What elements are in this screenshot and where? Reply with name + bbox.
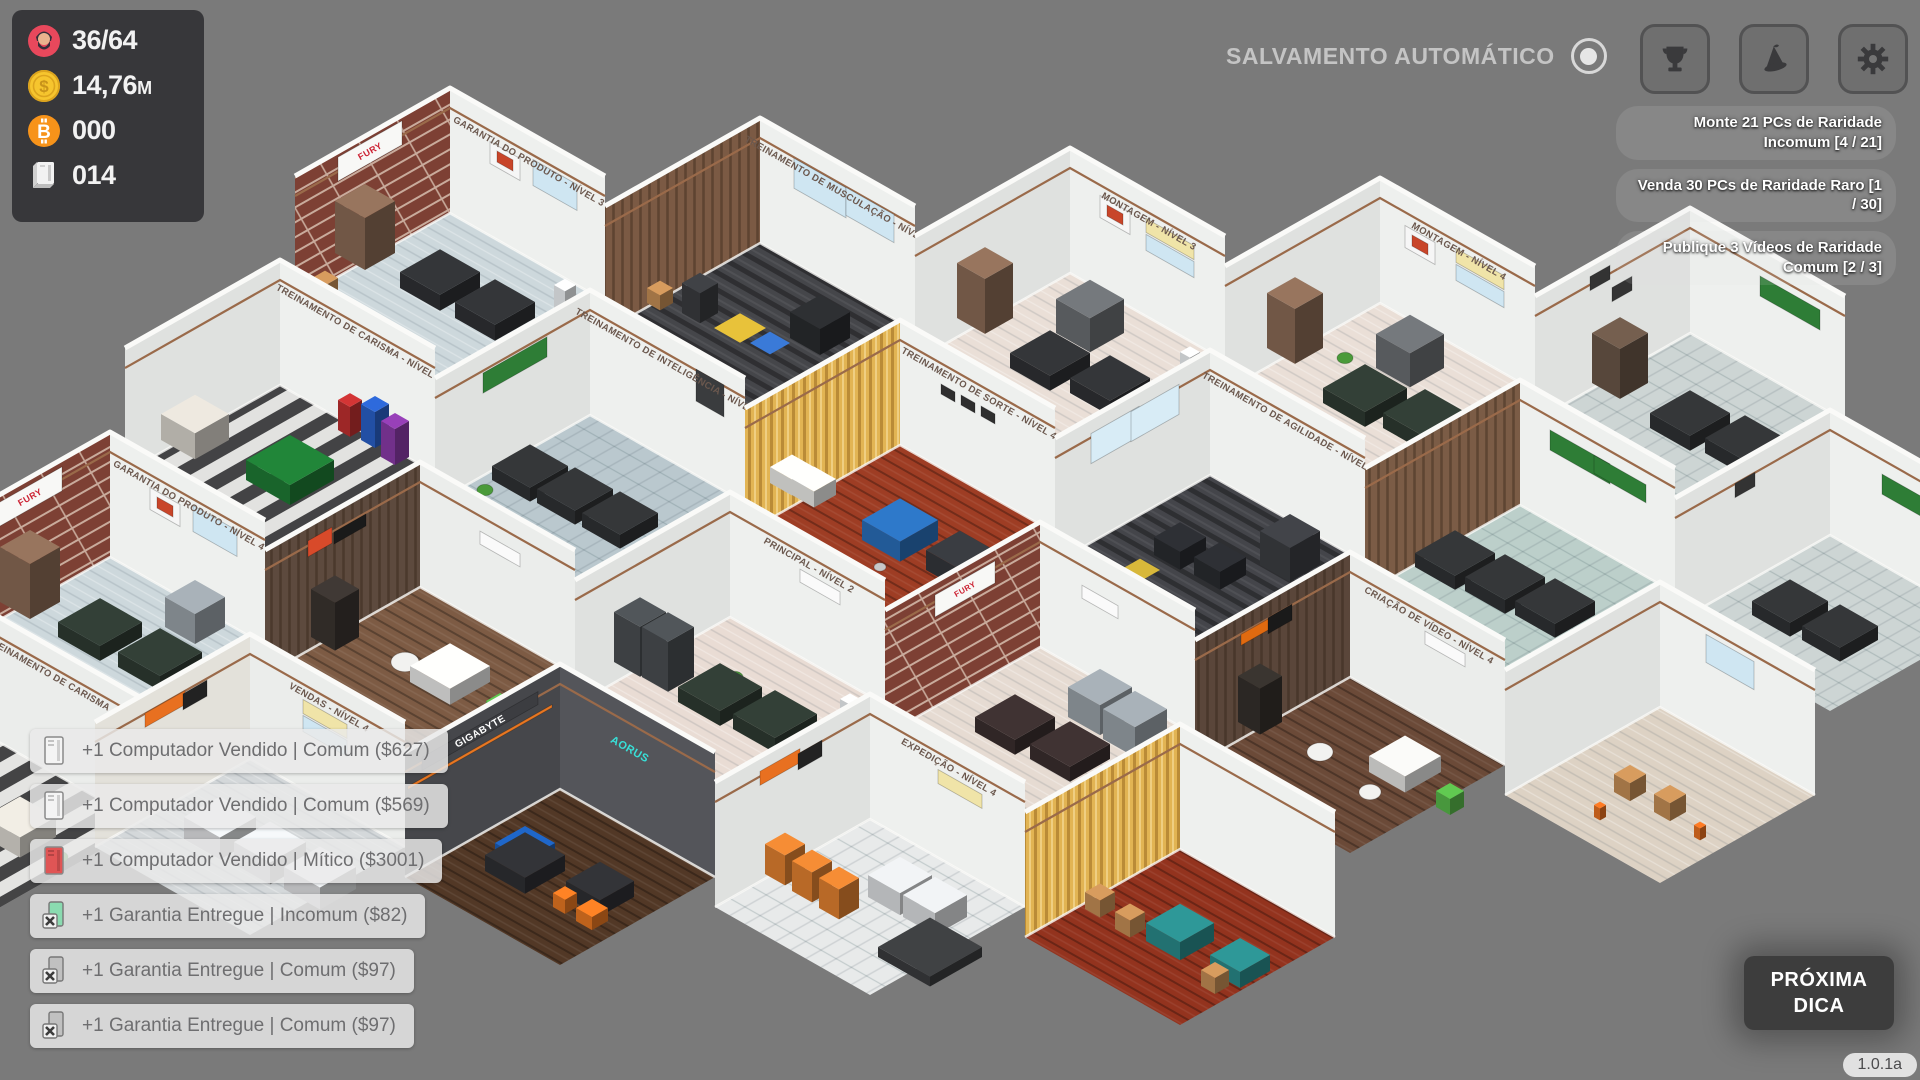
- game-screen: FURYGARANTIA DO PRODUTO - NÍVEL 3TREINAM…: [0, 0, 1920, 1080]
- quest-item-1[interactable]: Monte 21 PCs de Raridade Incomum [4 / 21…: [1616, 106, 1896, 160]
- stat-reputation-value: 36/64: [72, 25, 137, 56]
- stat-crypto-value: 000: [72, 115, 116, 146]
- autosave-indicator: SALVAMENTO AUTOMÁTICO: [1226, 38, 1607, 74]
- trophy-icon: [1656, 40, 1694, 78]
- next-tip-button[interactable]: PRÓXIMA DICA: [1744, 956, 1894, 1030]
- quest-list: Monte 21 PCs de Raridade Incomum [4 / 21…: [1616, 106, 1896, 294]
- autosave-label: SALVAMENTO AUTOMÁTICO: [1226, 43, 1555, 70]
- stat-computers: 014: [12, 153, 204, 198]
- stat-computers-value: 014: [72, 160, 116, 191]
- stat-crypto: B000: [12, 108, 204, 153]
- achievements-button[interactable]: [1640, 24, 1710, 94]
- stat-money-value: 14,76M: [72, 70, 152, 101]
- quest-item-3[interactable]: Publique 3 Vídeos de Raridade Comum [2 /…: [1616, 231, 1896, 285]
- notification-5: +1 Garantia Entregue | Comum ($97): [30, 949, 414, 993]
- svg-text:B: B: [37, 122, 51, 143]
- notification-4: +1 Garantia Entregue | Incomum ($82): [30, 894, 425, 938]
- stat-money: $14,76M: [12, 63, 204, 108]
- gear-icon: [1854, 40, 1892, 78]
- notification-feed: +1 Computador Vendido | Comum ($627)+1 C…: [30, 729, 448, 1059]
- notification-6: +1 Garantia Entregue | Comum ($97): [30, 1004, 414, 1048]
- settings-button[interactable]: [1838, 24, 1908, 94]
- version-badge: 1.0.1a: [1843, 1053, 1917, 1077]
- autosave-spinner-icon: [1571, 38, 1607, 74]
- notification-2: +1 Computador Vendido | Comum ($569): [30, 784, 448, 828]
- magic-hat-icon: [1755, 40, 1793, 78]
- player-stats-panel: 36/64$14,76MB000014: [12, 10, 204, 222]
- notification-3: +1 Computador Vendido | Mítico ($3001): [30, 839, 442, 883]
- quest-item-2[interactable]: Venda 30 PCs de Raridade Raro [1 / 30]: [1616, 169, 1896, 223]
- notification-1: +1 Computador Vendido | Comum ($627): [30, 729, 448, 773]
- stat-reputation: 36/64: [12, 18, 204, 63]
- rewards-button[interactable]: [1739, 24, 1809, 94]
- svg-text:$: $: [39, 77, 49, 96]
